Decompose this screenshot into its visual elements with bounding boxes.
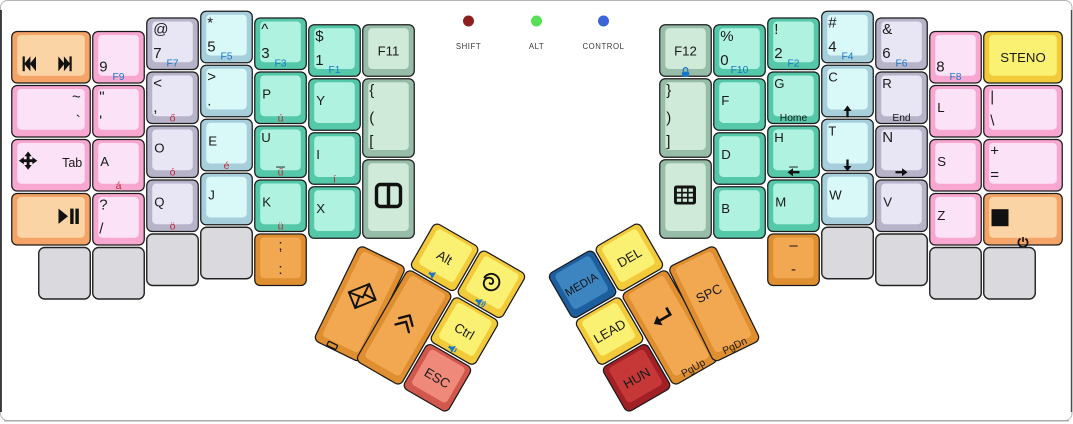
svg-text:+: + bbox=[990, 143, 999, 160]
svg-text:F4: F4 bbox=[841, 52, 853, 63]
svg-text:': ' bbox=[99, 113, 102, 130]
svg-text:$: $ bbox=[315, 28, 324, 45]
svg-text:3: 3 bbox=[261, 45, 269, 62]
svg-text:ú: ú bbox=[278, 113, 284, 125]
svg-text:á: á bbox=[116, 180, 122, 192]
svg-text:N: N bbox=[882, 129, 893, 146]
svg-text:M: M bbox=[775, 194, 786, 209]
svg-text:End: End bbox=[892, 113, 911, 124]
svg-text:6: 6 bbox=[882, 45, 890, 62]
svg-text:,: , bbox=[153, 99, 157, 116]
svg-text:ALT: ALT bbox=[529, 42, 544, 51]
svg-text:^: ^ bbox=[261, 21, 268, 38]
svg-text:>: > bbox=[207, 68, 216, 85]
svg-text:#: # bbox=[828, 14, 837, 31]
svg-text:CONTROL: CONTROL bbox=[583, 42, 625, 51]
svg-text:J: J bbox=[208, 188, 215, 203]
svg-text:T: T bbox=[828, 123, 836, 138]
svg-text:C: C bbox=[828, 69, 838, 84]
svg-text:Q: Q bbox=[154, 194, 164, 209]
svg-text:F3: F3 bbox=[274, 58, 286, 69]
svg-text:-: - bbox=[791, 261, 796, 278]
svg-text:F8: F8 bbox=[949, 72, 961, 83]
svg-text:W: W bbox=[829, 188, 842, 203]
svg-text:=: = bbox=[990, 167, 999, 184]
svg-text:0: 0 bbox=[720, 52, 728, 69]
svg-text:!: ! bbox=[774, 21, 778, 38]
svg-text:U: U bbox=[261, 130, 271, 145]
svg-text:X: X bbox=[316, 201, 325, 216]
svg-text:O: O bbox=[154, 140, 164, 155]
svg-text:Y: Y bbox=[316, 93, 325, 108]
svg-text:F10: F10 bbox=[731, 65, 749, 76]
svg-text:B: B bbox=[721, 201, 730, 216]
svg-text:D: D bbox=[721, 147, 731, 162]
svg-text:(: ( bbox=[369, 110, 374, 127]
svg-text:L: L bbox=[937, 100, 944, 115]
svg-text:V: V bbox=[883, 194, 892, 209]
svg-text:ő: ő bbox=[170, 113, 176, 125]
svg-text:é: é bbox=[224, 160, 230, 172]
svg-text:SHIFT: SHIFT bbox=[456, 42, 481, 51]
svg-text:": " bbox=[99, 89, 104, 106]
svg-text:5: 5 bbox=[207, 38, 215, 55]
svg-text:): ) bbox=[666, 110, 671, 127]
svg-text:F6: F6 bbox=[895, 58, 907, 69]
svg-text:F12: F12 bbox=[674, 43, 697, 58]
svg-text:I: I bbox=[316, 147, 320, 162]
svg-text:Home: Home bbox=[780, 113, 808, 124]
svg-text:F2: F2 bbox=[787, 58, 799, 69]
svg-text:ó: ó bbox=[170, 167, 176, 179]
svg-text:F9: F9 bbox=[112, 72, 124, 83]
svg-text:ü: ü bbox=[278, 221, 284, 233]
svg-text:?: ? bbox=[99, 197, 107, 214]
svg-text::: : bbox=[278, 261, 282, 278]
svg-text:4: 4 bbox=[828, 38, 836, 55]
svg-text:F1: F1 bbox=[328, 65, 340, 76]
svg-text:;: ; bbox=[278, 237, 282, 254]
svg-text:–: – bbox=[789, 237, 798, 254]
svg-text:.: . bbox=[207, 92, 211, 109]
svg-text:}: } bbox=[666, 82, 671, 99]
svg-text:2: 2 bbox=[774, 45, 782, 62]
svg-text:_: _ bbox=[788, 152, 798, 169]
svg-text:<: < bbox=[153, 75, 162, 92]
svg-text:7: 7 bbox=[153, 45, 161, 62]
svg-text:S: S bbox=[937, 154, 946, 169]
svg-text:]: ] bbox=[666, 133, 670, 150]
svg-text:~: ~ bbox=[72, 89, 81, 106]
svg-text:8: 8 bbox=[936, 59, 944, 76]
svg-text:%: % bbox=[720, 28, 733, 45]
svg-text:1: 1 bbox=[315, 52, 323, 69]
svg-text:@: @ bbox=[153, 21, 168, 38]
svg-text:F7: F7 bbox=[166, 58, 178, 69]
svg-text:STENO: STENO bbox=[1000, 50, 1045, 65]
svg-text:Z: Z bbox=[937, 208, 945, 223]
svg-text:&: & bbox=[882, 21, 892, 38]
svg-text:í: í bbox=[333, 173, 336, 185]
svg-text:ű: ű bbox=[278, 167, 284, 179]
svg-text:Tab: Tab bbox=[62, 156, 82, 170]
svg-text:H: H bbox=[774, 130, 784, 145]
svg-text:F11: F11 bbox=[378, 43, 400, 58]
svg-text:ö: ö bbox=[170, 221, 176, 233]
svg-text:{: { bbox=[369, 82, 374, 99]
svg-text:`: ` bbox=[76, 113, 81, 130]
svg-text:F: F bbox=[721, 93, 729, 108]
svg-text:A: A bbox=[100, 154, 109, 169]
svg-text:9: 9 bbox=[99, 59, 107, 76]
svg-text:F5: F5 bbox=[220, 52, 232, 63]
svg-text:K: K bbox=[262, 194, 271, 209]
svg-text:G: G bbox=[774, 76, 784, 91]
svg-text:|: | bbox=[990, 89, 994, 106]
svg-text:R: R bbox=[882, 76, 892, 91]
svg-text:P: P bbox=[262, 86, 271, 101]
svg-text:E: E bbox=[208, 134, 217, 149]
svg-text:*: * bbox=[207, 14, 213, 31]
